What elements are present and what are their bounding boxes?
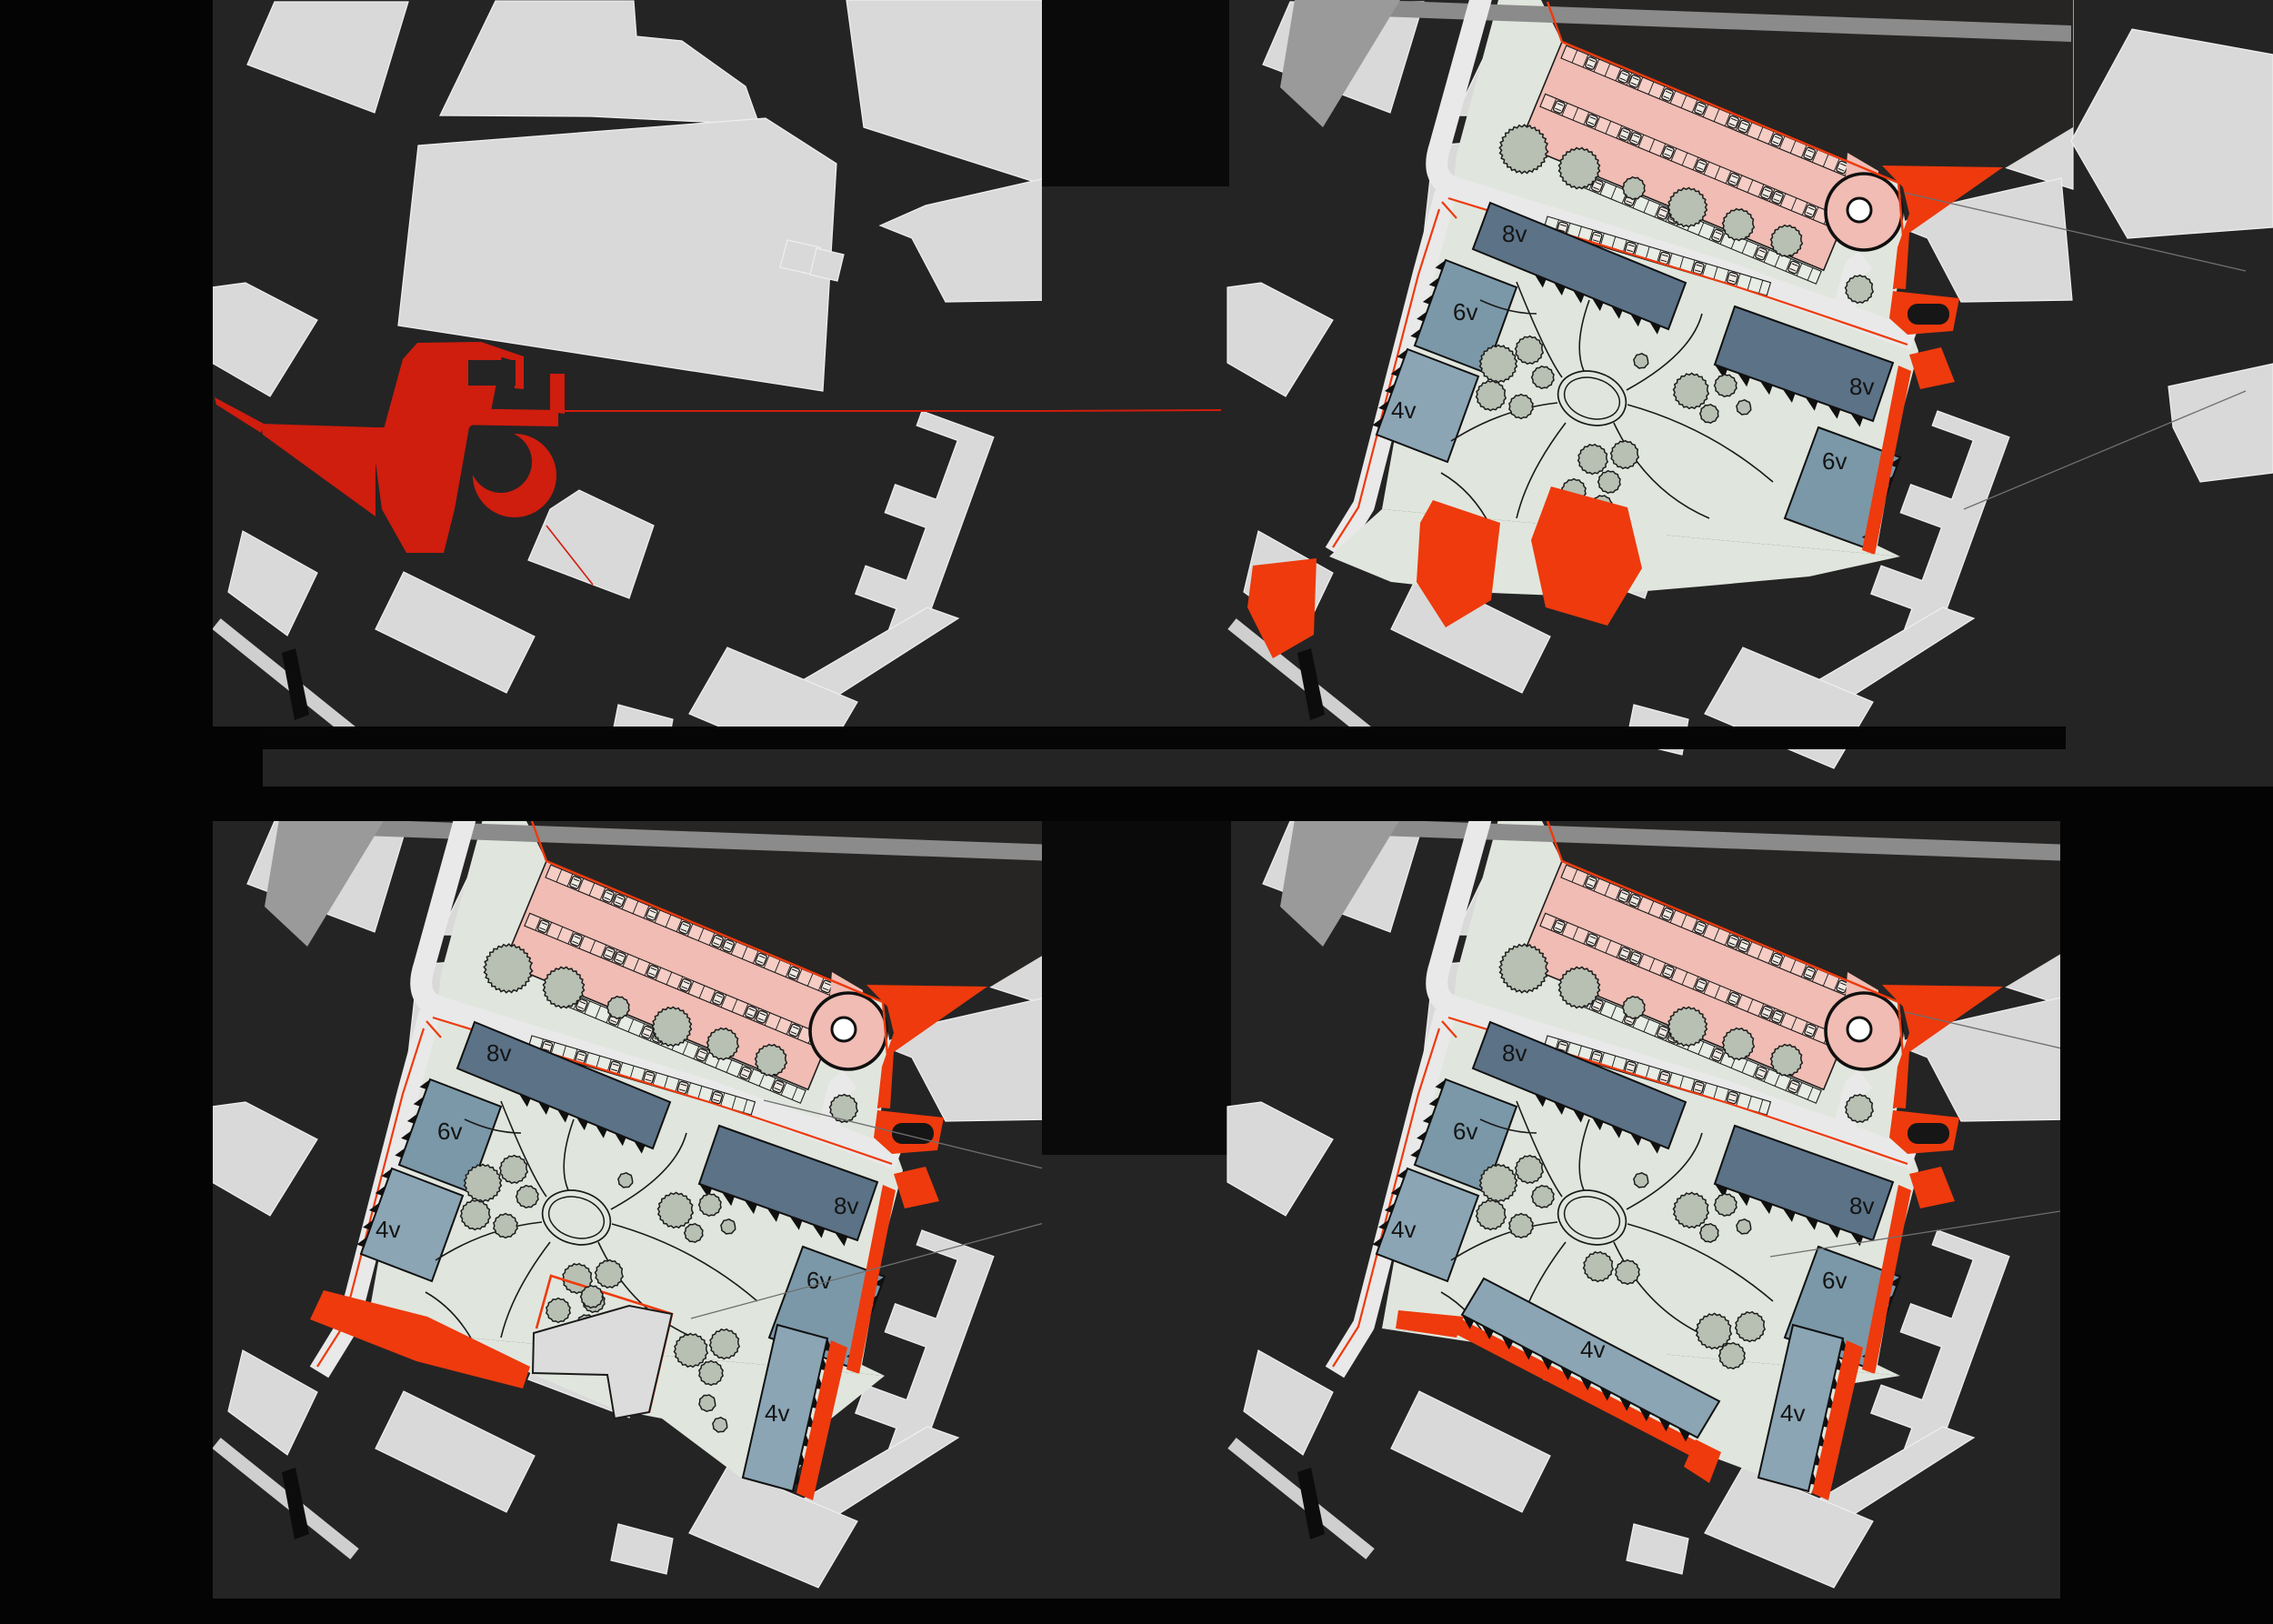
- svg-text:4v: 4v: [1780, 1399, 1805, 1427]
- svg-text:4v: 4v: [765, 1399, 789, 1427]
- svg-text:4v: 4v: [1580, 1336, 1605, 1363]
